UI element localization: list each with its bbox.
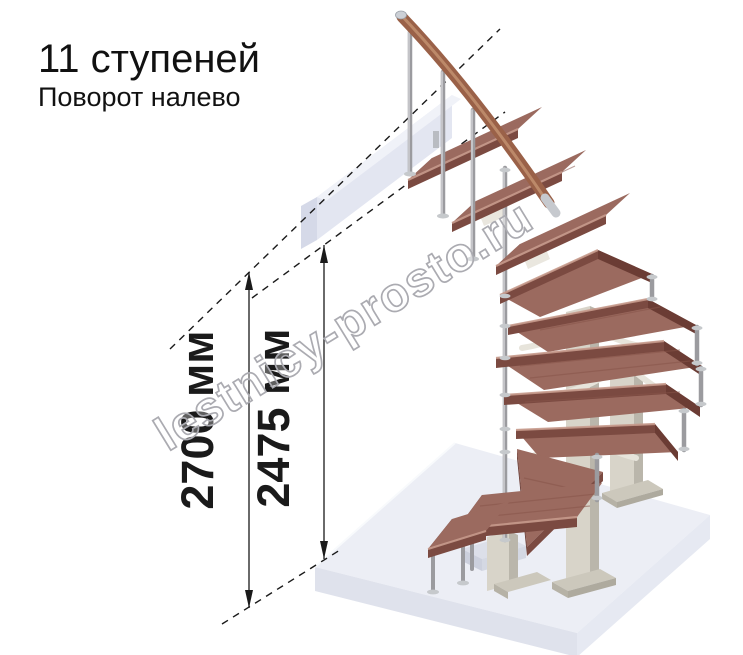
flange: [500, 538, 511, 543]
flange: [592, 455, 603, 460]
dimension-2700-arrow-bottom: [245, 590, 253, 608]
flange: [500, 324, 511, 329]
staircase-diagram-page: 2700 мм 2475 мм: [0, 0, 743, 655]
flange: [500, 393, 511, 398]
flange: [404, 172, 416, 177]
flange: [500, 168, 511, 173]
page-title: 11 ступеней: [38, 37, 260, 81]
heading: 11 ступеней Поворот налево: [38, 37, 260, 112]
flange: [592, 496, 603, 501]
flange: [500, 294, 511, 299]
flange: [647, 297, 658, 302]
tread-5-winder: [504, 384, 700, 422]
flange: [500, 427, 511, 432]
page-subtitle: Поворот налево: [38, 82, 241, 112]
flange: [647, 275, 658, 280]
beam-bracket: [433, 131, 439, 148]
flange: [692, 326, 703, 331]
handrail-end-ferrule: [545, 198, 556, 213]
flange: [696, 367, 707, 372]
flange: [692, 361, 703, 366]
handrail-top-cap: [396, 11, 407, 19]
beam-end-face: [301, 197, 317, 249]
flange: [696, 402, 707, 407]
flange: [679, 447, 690, 452]
watermark-text: lestnicy-prosto.ru: [146, 190, 542, 461]
flange: [500, 356, 511, 361]
tread-1-foot-a: [427, 590, 439, 595]
front-column-side: [509, 531, 518, 585]
flange: [500, 450, 511, 455]
dimension-2475-arrow-top: [320, 245, 328, 263]
tread-1-foot-b: [457, 581, 469, 586]
staircase-scene: 2700 мм 2475 мм: [0, 0, 743, 655]
flange: [437, 214, 449, 219]
flange: [679, 409, 690, 414]
